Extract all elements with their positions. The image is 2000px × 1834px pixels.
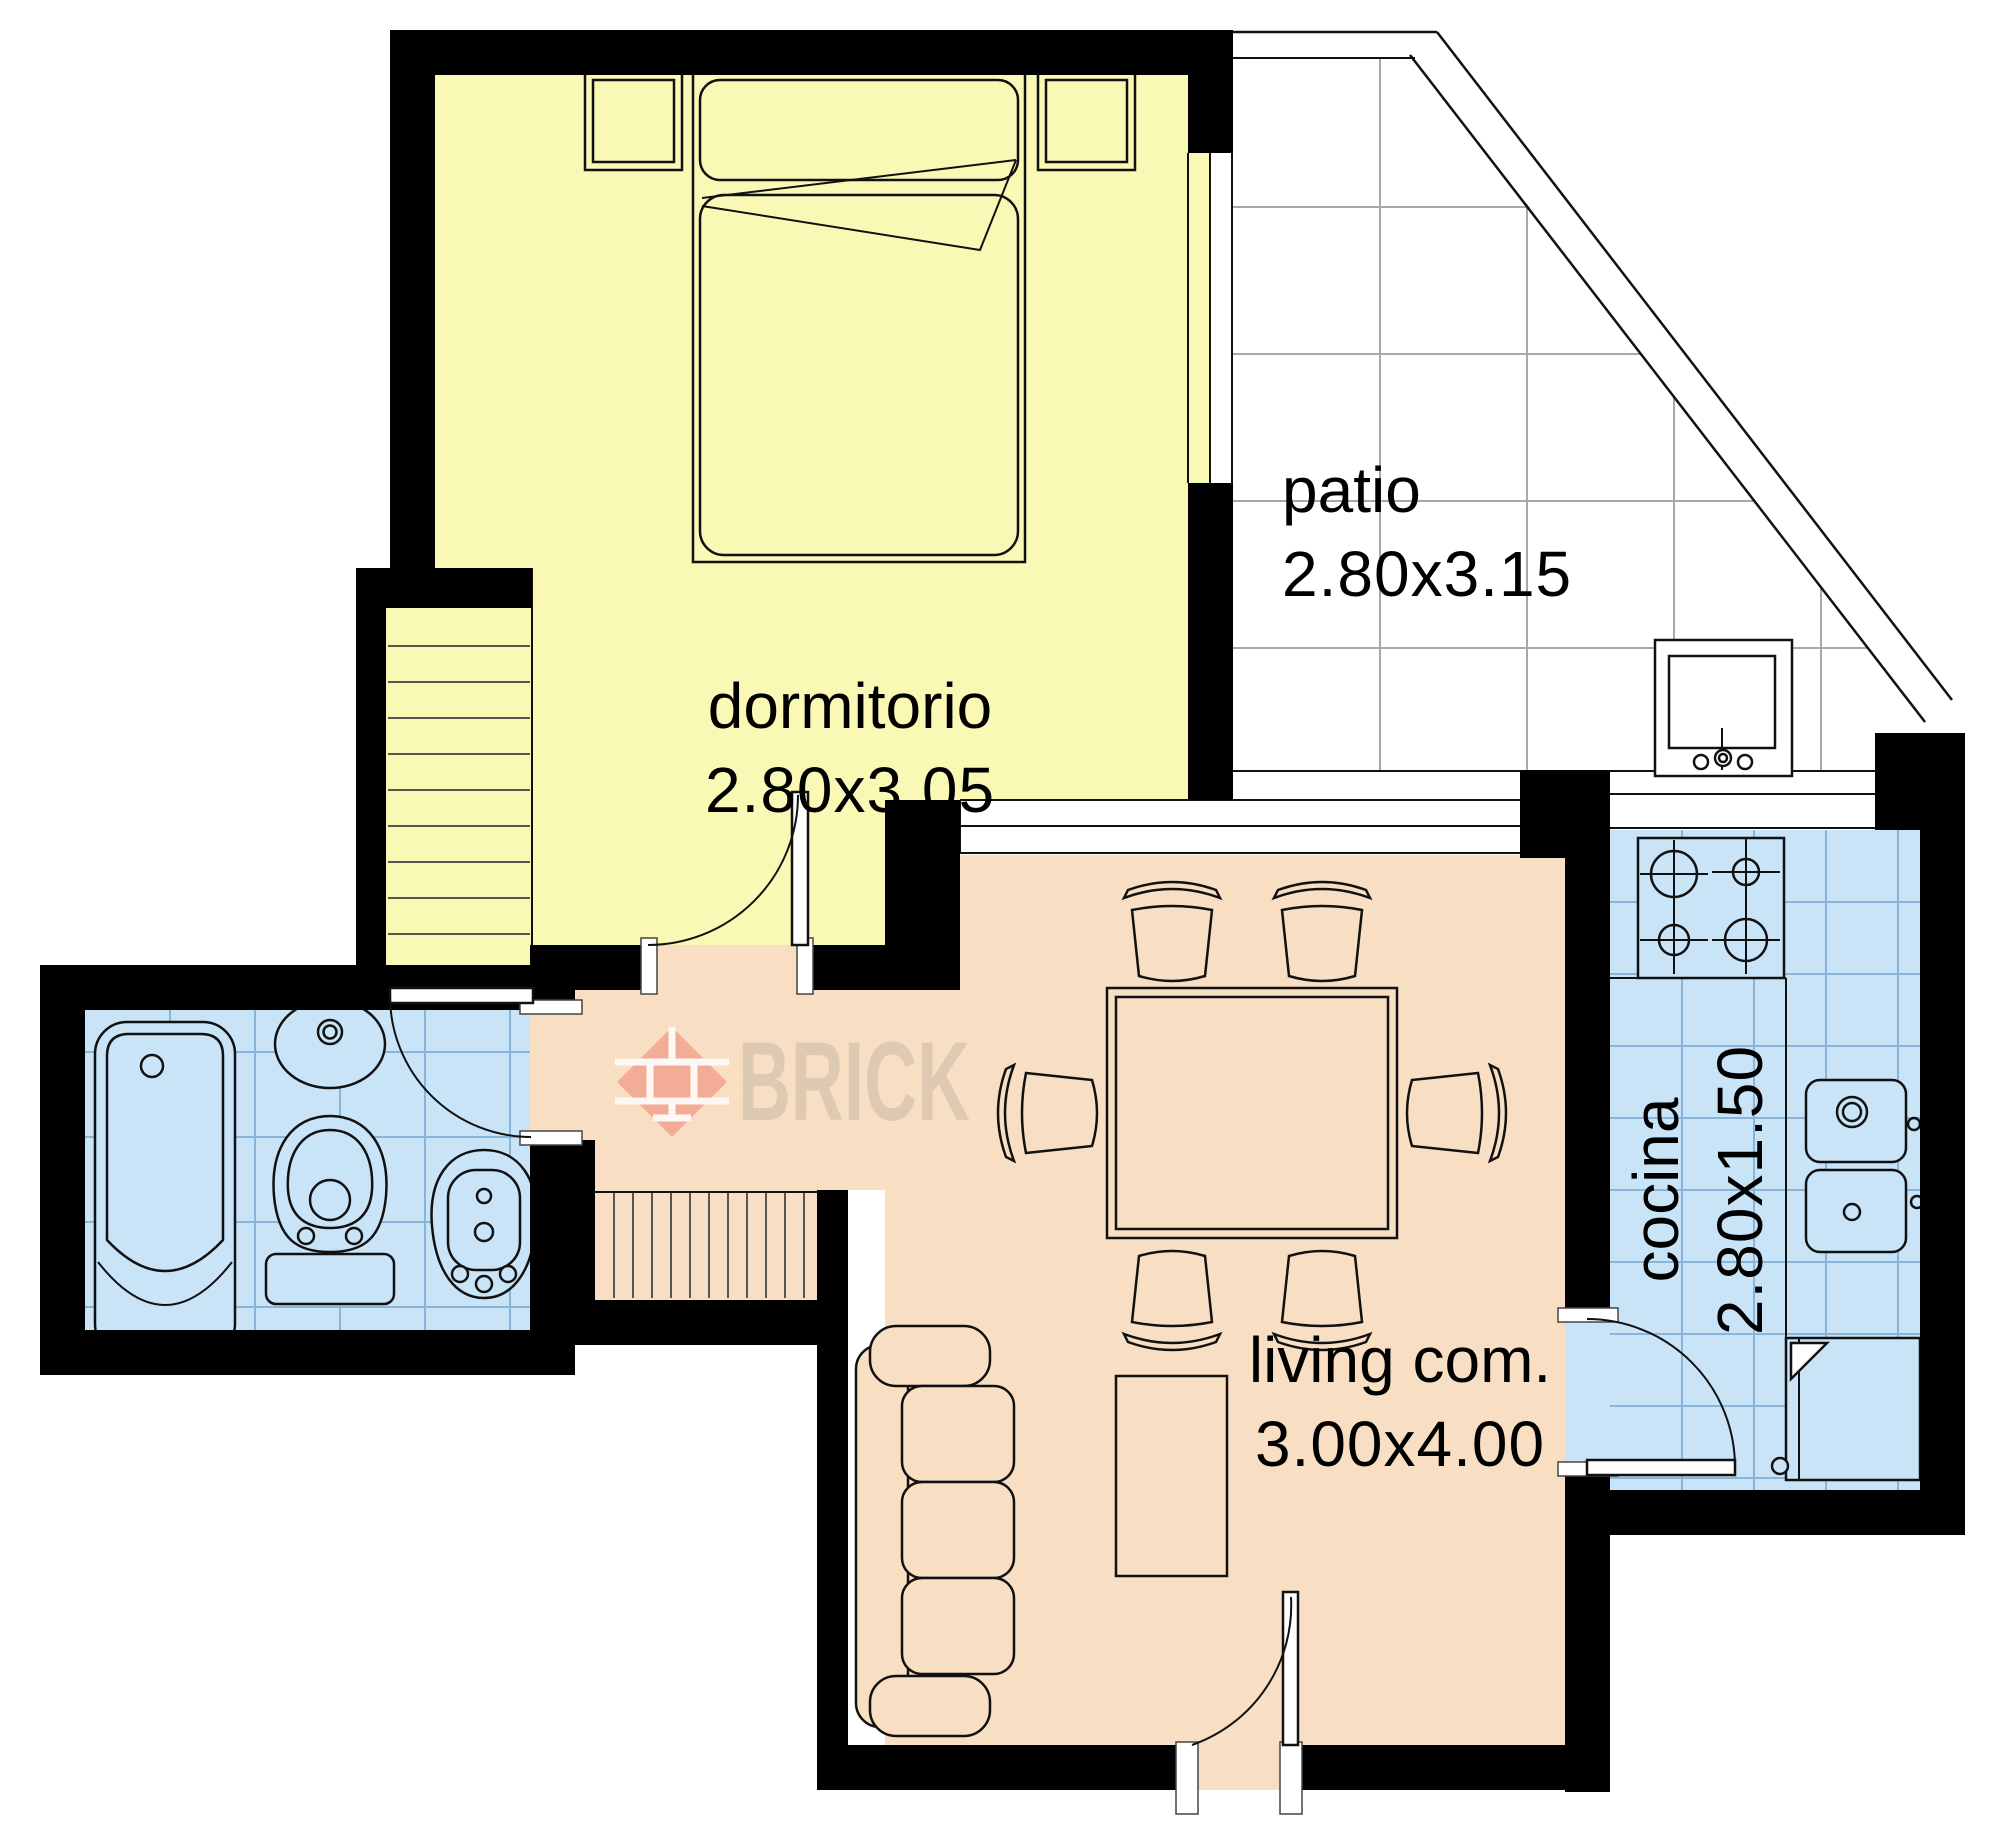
- sofa-armrest-bottom: [870, 1676, 990, 1736]
- wall-segment: [1920, 830, 1965, 1535]
- wall-segment: [817, 1745, 1187, 1790]
- living-window-band-left: [960, 800, 1238, 855]
- sofa-cushion: [902, 1578, 1014, 1674]
- wall-segment: [1565, 1490, 1965, 1535]
- sofa-cushion: [902, 1386, 1014, 1482]
- toilet-mat: [266, 1254, 394, 1304]
- living-dims: 3.00x4.00: [1249, 1402, 1551, 1486]
- sofa: [856, 1326, 1014, 1736]
- living-name: living com.: [1249, 1318, 1551, 1402]
- wall-segment: [1188, 75, 1233, 153]
- kitchen-name: cocina: [1614, 1045, 1698, 1335]
- patio-dims: 2.80x3.15: [1282, 532, 1572, 616]
- patio-name: patio: [1282, 448, 1572, 532]
- wall-segment: [817, 1190, 848, 1790]
- brand-watermark: BRICK: [615, 1019, 970, 1144]
- brand-watermark-text: BRICK: [738, 1019, 970, 1144]
- toilet: [266, 1116, 394, 1304]
- bedroom-window-sill: [1211, 153, 1233, 483]
- wall-segment: [40, 965, 85, 1375]
- plan-drawing: BRICK: [0, 0, 2000, 1834]
- sofa-back: [856, 1345, 908, 1727]
- patio-floor: [1233, 32, 1952, 772]
- kitchen-dims: 2.80x1.50: [1698, 1045, 1782, 1335]
- bedroom-label: dormitorio 2.80x3.05: [705, 664, 995, 832]
- bathtub: [95, 1022, 235, 1356]
- double-bed: [693, 62, 1025, 562]
- living-label: living com. 3.00x4.00: [1249, 1318, 1551, 1486]
- bedroom-name: dormitorio: [705, 664, 995, 748]
- dining-table: [1107, 988, 1397, 1238]
- tub-drain: [141, 1055, 163, 1077]
- bedroom-dims: 2.80x3.05: [705, 748, 995, 832]
- wall-segment: [390, 30, 1233, 75]
- stairs-down-floor: [595, 1190, 820, 1302]
- sofa-cushion: [902, 1482, 1014, 1578]
- wall-segment: [530, 1143, 575, 1375]
- bedroom-window-glass: [1188, 153, 1211, 483]
- wall-segment: [1565, 855, 1610, 1320]
- door-leaf: [390, 988, 533, 1003]
- wall-segment: [1293, 1745, 1610, 1790]
- living-patio-window-band: [1233, 770, 1565, 855]
- laundry-sink: [1655, 640, 1792, 776]
- coffee-table: [1116, 1376, 1227, 1576]
- refrigerator: [1772, 1338, 1920, 1480]
- bidet: [432, 1150, 537, 1298]
- stove: [1638, 838, 1784, 978]
- wall-segment: [545, 1300, 848, 1345]
- patio-label: patio 2.80x3.15: [1282, 448, 1572, 616]
- wall-segment: [40, 1330, 575, 1375]
- kitchen-patio-window-band: [1610, 770, 1875, 830]
- floor-plan: BRICK: [0, 0, 2000, 1834]
- nightstand-left: [585, 72, 682, 170]
- wall-segment: [356, 568, 386, 1010]
- wall-segment: [1188, 483, 1233, 800]
- wall-segment: [1875, 733, 1965, 830]
- wall-segment: [390, 75, 435, 570]
- kitchen-label: cocina 2.80x1.50: [1614, 1045, 1782, 1335]
- wall-segment: [1520, 770, 1610, 858]
- sofa-armrest-top: [870, 1326, 990, 1386]
- door-leaf: [1587, 1460, 1735, 1475]
- nightstand-right: [1038, 72, 1135, 170]
